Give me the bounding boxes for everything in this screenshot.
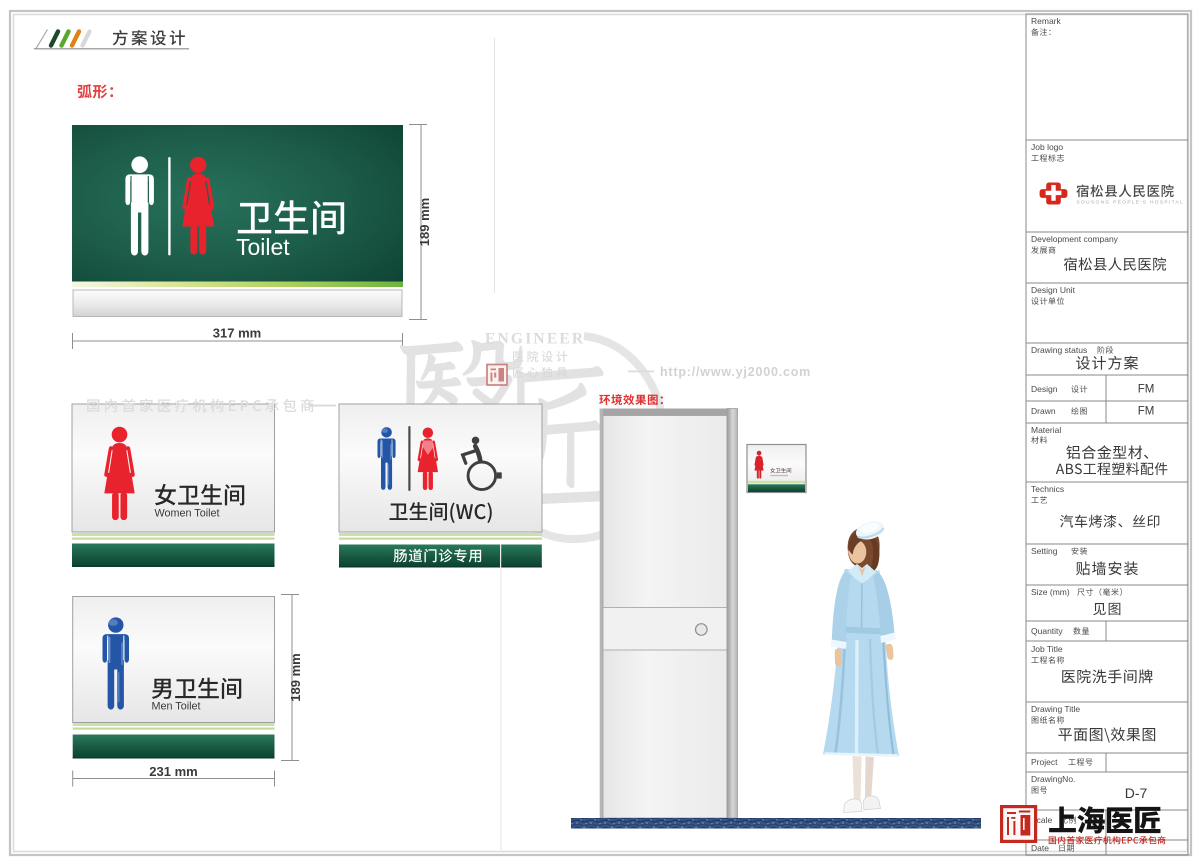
svg-text:317 mm: 317 mm <box>213 326 261 341</box>
svg-text:Toilet: Toilet <box>236 234 290 260</box>
svg-text:Size (mm): Size (mm) <box>1031 587 1070 597</box>
svg-text:Men Toilet: Men Toilet <box>152 701 201 713</box>
svg-text:Setting: Setting <box>1031 546 1058 556</box>
svg-text:http://www.yj2000.com: http://www.yj2000.com <box>660 365 811 379</box>
svg-text:231 mm: 231 mm <box>149 764 197 779</box>
svg-text:Development company: Development company <box>1031 234 1119 244</box>
svg-text:189 mm: 189 mm <box>417 198 432 246</box>
svg-text:D-7: D-7 <box>1125 785 1148 801</box>
svg-text:ENGINEER: ENGINEER <box>485 331 585 348</box>
svg-text:Quantity: Quantity <box>1031 626 1063 636</box>
svg-text:Drawing Title: Drawing Title <box>1031 704 1080 714</box>
svg-text:Design: Design <box>1031 384 1058 394</box>
svg-text:DrawingNo.: DrawingNo. <box>1031 774 1075 784</box>
svg-text:189 mm: 189 mm <box>288 653 303 701</box>
svg-text:Remark: Remark <box>1031 16 1062 26</box>
svg-text:Design Unit: Design Unit <box>1031 285 1076 295</box>
svg-text:Drawn: Drawn <box>1031 406 1056 416</box>
svg-text:Date: Date <box>1031 843 1049 853</box>
svg-text:Technics: Technics <box>1031 484 1064 494</box>
svg-text:Job Title: Job Title <box>1031 644 1063 654</box>
svg-text:Material: Material <box>1031 425 1061 435</box>
svg-text:Women Toilet: Women Toilet <box>155 508 220 520</box>
svg-text:SOUSONG PEOPLE'S HOSPITAL: SOUSONG PEOPLE'S HOSPITAL <box>1077 200 1185 206</box>
svg-text:Drawing status: Drawing status <box>1031 345 1087 355</box>
svg-text:Project: Project <box>1031 757 1058 767</box>
svg-text:FM: FM <box>1138 384 1155 396</box>
svg-text:Job logo: Job logo <box>1031 142 1063 152</box>
svg-text:FM: FM <box>1138 406 1155 418</box>
